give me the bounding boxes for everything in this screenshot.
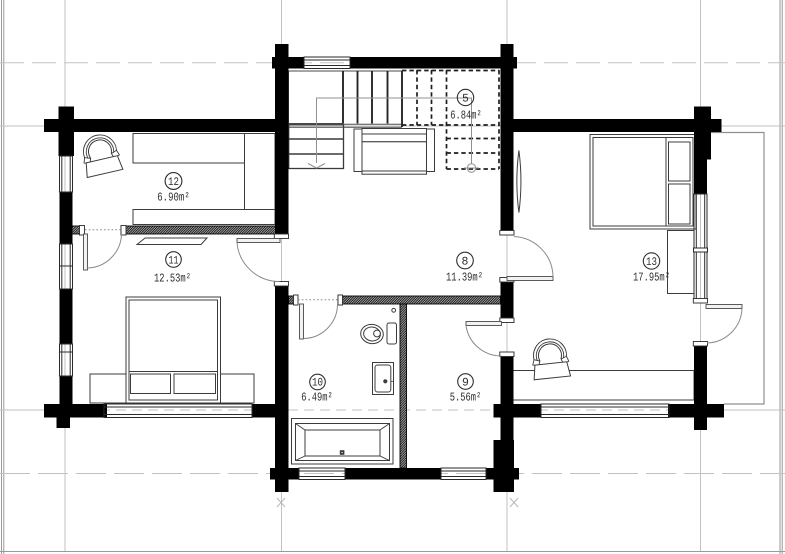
svg-text:6.90m²: 6.90m² [157,190,190,204]
svg-text:12.53m²: 12.53m² [154,272,191,286]
svg-text:10: 10 [312,377,323,390]
svg-text:11.39m²: 11.39m² [446,271,483,285]
svg-text:6.49m²: 6.49m² [301,391,333,405]
svg-text:5: 5 [462,93,469,106]
svg-text:8: 8 [462,256,469,269]
svg-text:12: 12 [168,176,179,189]
svg-text:11: 11 [169,255,179,268]
svg-text:9: 9 [462,377,469,390]
svg-text:17.95m²: 17.95m² [633,271,670,285]
svg-text:13: 13 [646,256,657,269]
svg-text:6.84m²: 6.84m² [450,109,482,123]
svg-text:5.56m²: 5.56m² [450,391,482,405]
